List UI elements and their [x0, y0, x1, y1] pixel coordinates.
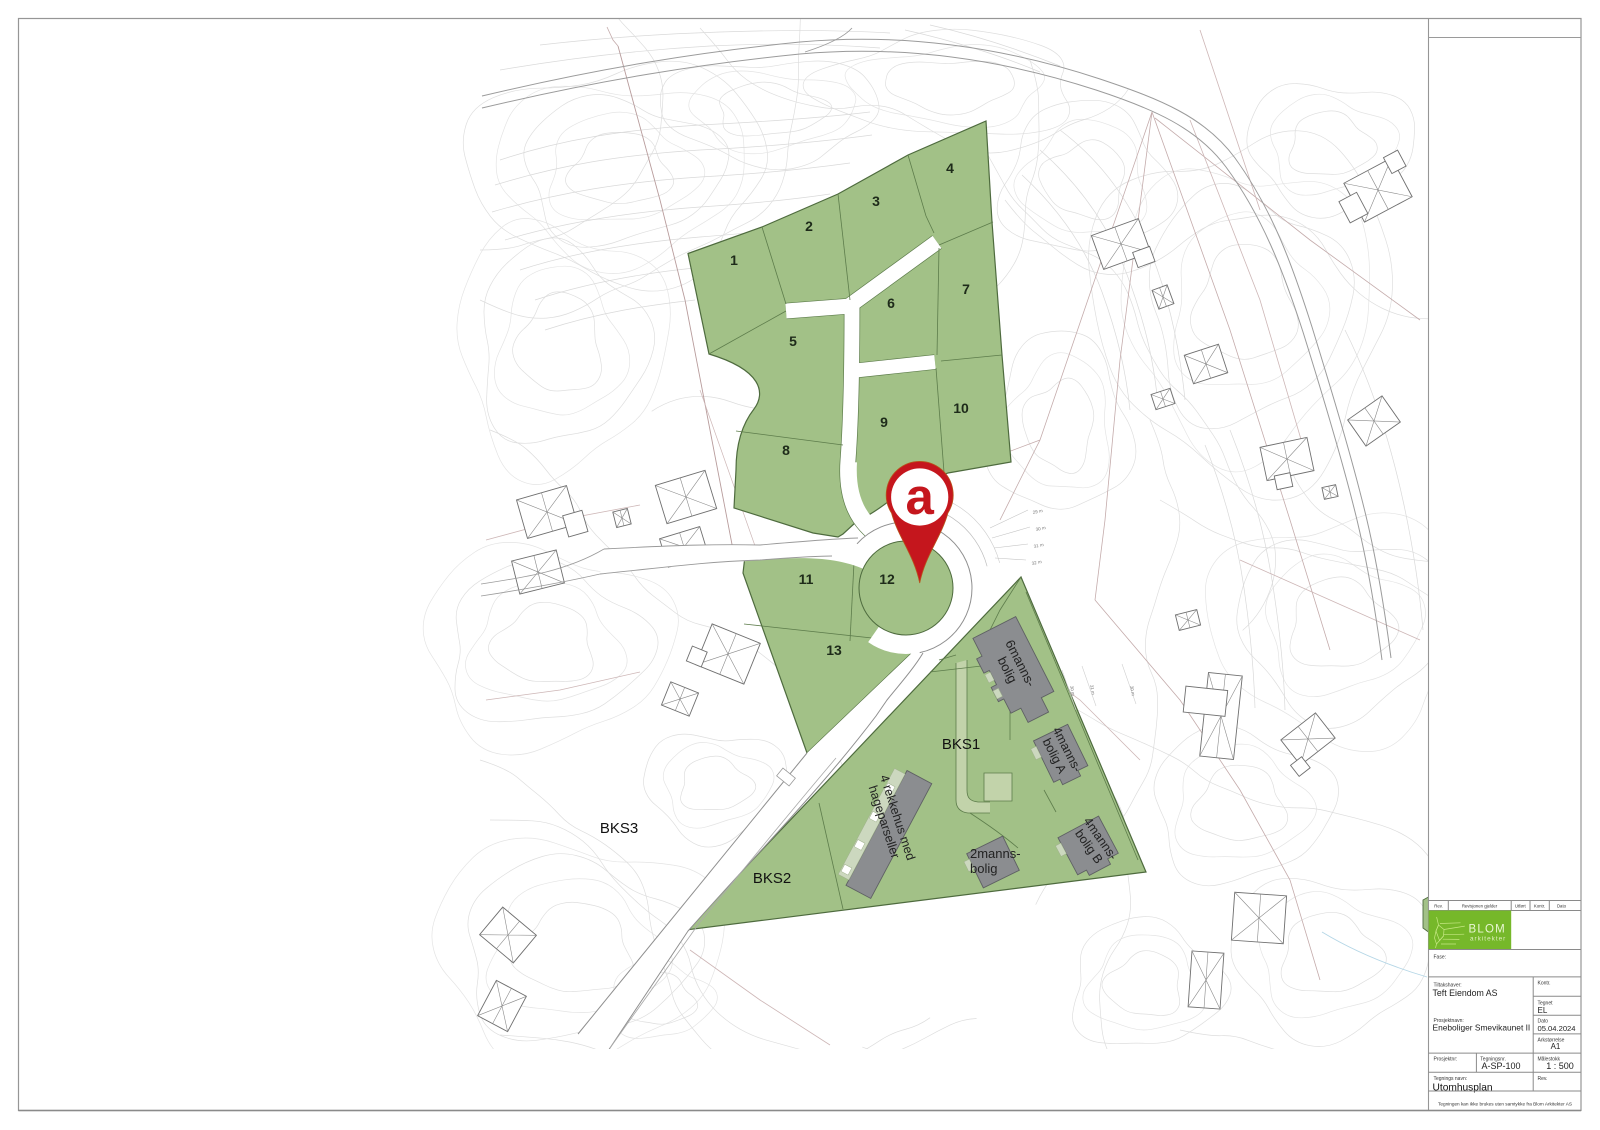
- svg-text:Eneboliger Smevikaunet II: Eneboliger Smevikaunet II: [1433, 1022, 1531, 1032]
- svg-text:2: 2: [805, 218, 813, 234]
- svg-text:Utomhusplan: Utomhusplan: [1433, 1082, 1493, 1093]
- svg-text:Tegnings navn:: Tegnings navn:: [1434, 1076, 1468, 1082]
- svg-text:A-SP-100: A-SP-100: [1482, 1061, 1521, 1071]
- svg-text:Tegningen kan ikke brukes uten: Tegningen kan ikke brukes uten samtykke …: [1438, 1102, 1572, 1107]
- svg-text:A1: A1: [1551, 1042, 1561, 1051]
- svg-text:Rev.: Rev.: [1434, 904, 1443, 909]
- svg-text:BKS1: BKS1: [942, 736, 980, 753]
- svg-text:EL: EL: [1538, 1006, 1548, 1015]
- svg-text:5: 5: [789, 333, 797, 349]
- svg-text:arkitekter: arkitekter: [1470, 936, 1506, 943]
- svg-text:Prosjektnr:: Prosjektnr:: [1434, 1057, 1458, 1063]
- svg-text:9: 9: [880, 414, 888, 430]
- svg-text:Kontr.: Kontr.: [1538, 981, 1551, 987]
- svg-text:13: 13: [826, 642, 842, 658]
- svg-text:a: a: [906, 468, 935, 525]
- svg-text:3: 3: [872, 193, 880, 209]
- svg-text:11: 11: [799, 571, 814, 587]
- svg-text:Kontr.: Kontr.: [1534, 904, 1545, 909]
- svg-text:4: 4: [946, 160, 954, 176]
- svg-text:2manns-: 2manns-: [970, 846, 1021, 861]
- svg-text:12: 12: [879, 571, 895, 587]
- svg-text:1: 1: [730, 252, 738, 268]
- svg-text:05.04.2024: 05.04.2024: [1538, 1024, 1576, 1033]
- svg-text:7: 7: [962, 281, 970, 297]
- svg-text:10: 10: [953, 400, 969, 416]
- svg-text:bolig: bolig: [970, 861, 997, 876]
- svg-text:Rev.: Rev.: [1538, 1076, 1548, 1082]
- svg-text:Revisjonen gjelder: Revisjonen gjelder: [1462, 904, 1498, 909]
- svg-text:BKS3: BKS3: [600, 820, 638, 837]
- svg-text:BLOM: BLOM: [1469, 924, 1506, 936]
- svg-text:6: 6: [887, 295, 895, 311]
- svg-text:Utført: Utført: [1515, 904, 1527, 909]
- svg-text:1 : 500: 1 : 500: [1546, 1061, 1574, 1071]
- svg-text:Teft Eiendom AS: Teft Eiendom AS: [1433, 988, 1498, 998]
- svg-text:Fase:: Fase:: [1434, 955, 1447, 961]
- svg-text:BKS2: BKS2: [753, 870, 791, 887]
- svg-text:8: 8: [782, 442, 790, 458]
- svg-text:Dato: Dato: [1557, 904, 1567, 909]
